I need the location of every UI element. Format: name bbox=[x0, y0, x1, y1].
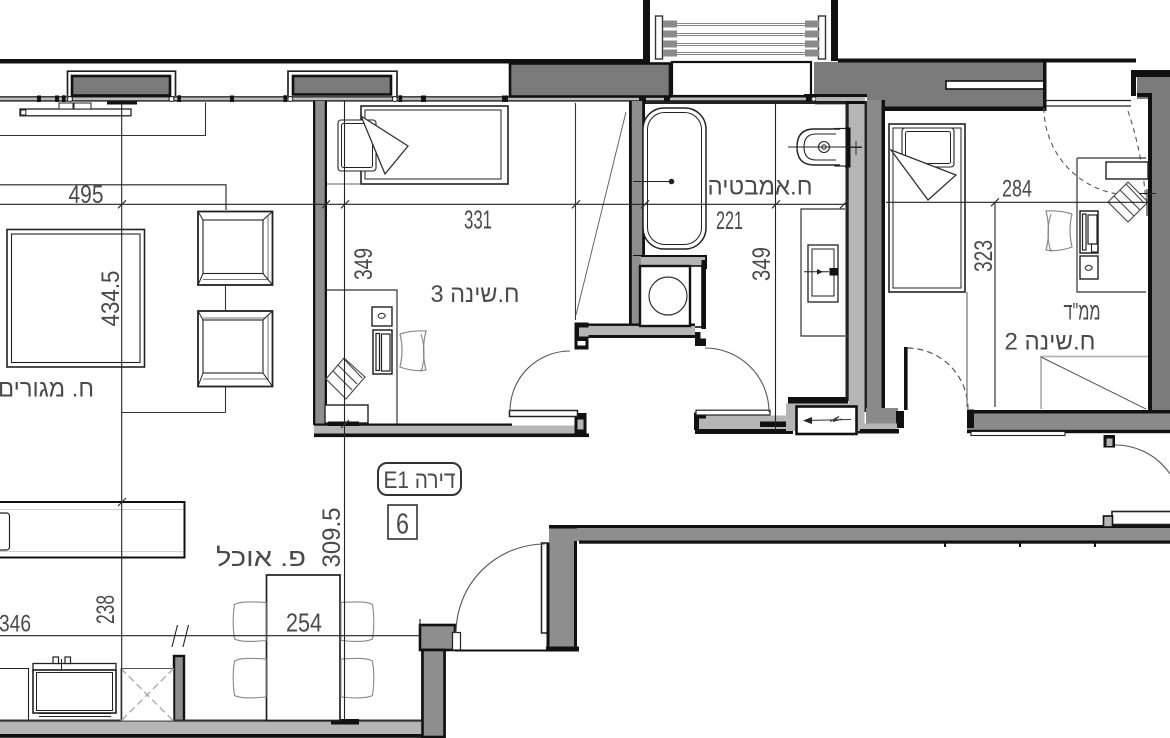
svg-text:ח.שינה 2: ח.שינה 2 bbox=[1005, 329, 1096, 356]
svg-text:434.5: 434.5 bbox=[97, 271, 125, 327]
svg-text:6: 6 bbox=[396, 509, 409, 541]
svg-text:323: 323 bbox=[970, 240, 998, 272]
svg-text:331: 331 bbox=[464, 205, 492, 235]
svg-text:238: 238 bbox=[92, 595, 120, 624]
svg-text:ח.שינה 3: ח.שינה 3 bbox=[430, 281, 519, 308]
svg-text:ח. מגורים: ח. מגורים bbox=[0, 376, 94, 403]
svg-text:349: 349 bbox=[350, 248, 378, 280]
svg-text:ממ"ד: ממ"ד bbox=[1064, 299, 1101, 326]
svg-text:פ. אוכל: פ. אוכל bbox=[216, 544, 306, 572]
svg-text:495: 495 bbox=[69, 181, 104, 209]
svg-text:284: 284 bbox=[1002, 176, 1032, 203]
svg-text:349: 349 bbox=[748, 247, 776, 281]
svg-text:309.5: 309.5 bbox=[318, 508, 346, 568]
svg-text:דירה E1: דירה E1 bbox=[384, 467, 456, 494]
svg-text:ח.אמבטיה: ח.אמבטיה bbox=[708, 174, 813, 201]
svg-text:346: 346 bbox=[0, 611, 31, 638]
svg-text:254: 254 bbox=[286, 608, 322, 638]
svg-text:221: 221 bbox=[716, 207, 743, 235]
